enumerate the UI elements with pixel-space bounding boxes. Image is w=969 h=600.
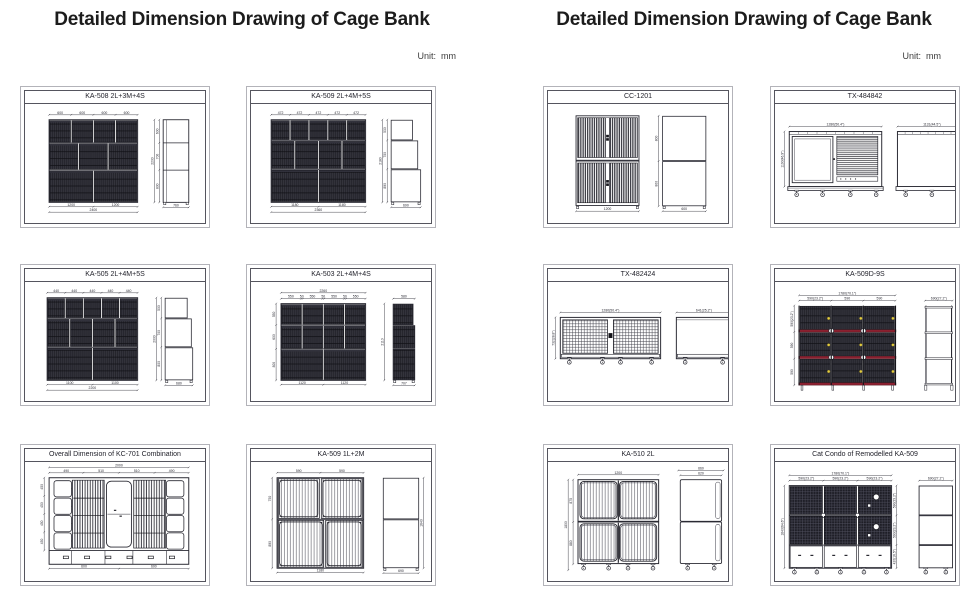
svg-text:600: 600 [151, 565, 157, 569]
panel-drawing: 1780(70.1")590(23.2")590(23.2")590(23.2"… [775, 462, 955, 581]
svg-text:600: 600 [124, 111, 130, 115]
panel-drawing: 4404404404404401100110022005007008002000… [25, 282, 205, 401]
svg-text:2400: 2400 [90, 208, 98, 212]
svg-text:440: 440 [108, 289, 114, 293]
panel-drawing: 1780(70.1")590(23.2")590590590(23.2")590… [775, 282, 955, 401]
svg-text:590: 590 [296, 469, 302, 473]
svg-text:1200: 1200 [67, 203, 75, 207]
svg-text:550: 550 [288, 295, 294, 299]
panel-frame: KA-508 2L+3M+4S 600600600600120012002400… [24, 90, 206, 224]
svg-text:660: 660 [698, 466, 704, 470]
svg-text:800: 800 [655, 181, 659, 187]
panel-drawing: 2000490510510490450450450450600600 [25, 462, 205, 581]
svg-text:875: 875 [569, 498, 573, 504]
svg-text:500: 500 [157, 305, 161, 311]
svg-text:2200: 2200 [89, 386, 97, 390]
svg-text:800: 800 [157, 361, 161, 367]
svg-text:1131(44.5"): 1131(44.5") [923, 123, 941, 127]
panel-drawing: 59059075089011801640690 [251, 462, 431, 581]
drawing-panel: KA-508 2L+3M+4S 600600600600120012002400… [20, 86, 210, 228]
svg-text:1780(70.1"): 1780(70.1") [838, 291, 856, 295]
panel-frame: KA-509D-9S 1780(70.1")590(23.2")59059059… [774, 268, 956, 402]
svg-text:1100: 1100 [66, 381, 73, 385]
svg-text:750: 750 [268, 496, 272, 502]
svg-text:580: 580 [401, 295, 407, 299]
panel-title: KA-508 2L+3M+4S [25, 91, 205, 104]
drawing-panel: KA-509 1L+2M 59059075089011801640690 [246, 444, 436, 586]
svg-text:1180: 1180 [291, 203, 298, 207]
svg-text:490: 490 [63, 469, 69, 473]
svg-text:641(25.2"): 641(25.2") [696, 309, 712, 313]
panel-title: KA-505 2L+4M+5S [25, 269, 205, 282]
panel-title: KA-509D-9S [775, 269, 955, 282]
svg-text:590(23.2"): 590(23.2") [832, 477, 848, 481]
panel-title: Cat Condo of Remodelled KA-509 [775, 449, 955, 462]
svg-text:472: 472 [353, 111, 359, 115]
panel-frame: KA-510 2L 12001800875880660620 [547, 448, 729, 582]
drawing-panel: KA-509 2L+4M+5S 472472472472472118011802… [246, 86, 436, 228]
svg-text:1640: 1640 [420, 519, 424, 527]
drawing-panel: KA-505 2L+4M+5S 440440440440440110011002… [20, 264, 210, 406]
panel-title: KA-509 1L+2M [251, 449, 431, 462]
panel-title: CC-1201 [548, 91, 728, 104]
svg-text:1120: 1120 [341, 381, 348, 385]
svg-text:1780(70.1"): 1780(70.1") [831, 471, 849, 475]
svg-text:750: 750 [383, 152, 387, 158]
svg-text:1190(46.9"): 1190(46.9") [780, 151, 784, 168]
svg-text:420(16.5"): 420(16.5") [892, 549, 896, 564]
svg-text:600: 600 [57, 111, 63, 115]
drawing-panel: TX-484842 1280(50.4")1190(46.9")1131(44.… [770, 86, 960, 228]
svg-text:472: 472 [297, 111, 303, 115]
svg-text:550: 550 [310, 295, 316, 299]
svg-text:2260: 2260 [319, 289, 327, 293]
svg-text:440: 440 [126, 289, 132, 293]
panel-title: Overall Dimension of KC-701 Combination [25, 449, 205, 462]
svg-text:590(23.2"): 590(23.2") [807, 297, 823, 301]
svg-text:450: 450 [40, 484, 44, 490]
svg-text:690(27.2"): 690(27.2") [931, 297, 947, 301]
svg-text:600: 600 [81, 565, 87, 569]
svg-text:510: 510 [134, 469, 140, 473]
svg-text:760: 760 [173, 203, 179, 207]
svg-text:550: 550 [272, 311, 276, 317]
panel-title: TX-484842 [775, 91, 955, 104]
panel-drawing: 2260550505505055050550112011205506008005… [251, 282, 431, 401]
catalog-page-left: Detailed Dimension Drawing of Cage Bank … [0, 0, 484, 600]
svg-text:2360: 2360 [315, 208, 323, 212]
drawing-panel: CC-1201 1200800800600 [543, 86, 733, 228]
svg-text:2000: 2000 [115, 463, 123, 467]
panel-frame: KA-505 2L+4M+5S 440440440440440110011002… [24, 268, 206, 402]
panel-title: KA-503 2L+4M+4S [251, 269, 431, 282]
svg-text:550: 550 [331, 295, 337, 299]
panel-frame: KA-509 2L+4M+5S 472472472472472118011802… [250, 90, 432, 224]
panels-grid: KA-508 2L+3M+4S 600600600600120012002400… [0, 0, 484, 600]
svg-text:530: 530 [383, 127, 387, 133]
panel-frame: TX-484842 1280(50.4")1190(46.9")1131(44.… [774, 90, 956, 224]
drawing-panel: KA-510 2L 12001800875880660620 [543, 444, 733, 586]
svg-text:620: 620 [698, 471, 704, 475]
svg-text:590(23.2"): 590(23.2") [798, 477, 814, 481]
panels-grid: CC-1201 1200800800600 TX-484842 1280(50.… [485, 0, 969, 600]
svg-text:590: 590 [877, 297, 883, 301]
svg-text:880: 880 [569, 540, 573, 546]
svg-text:450: 450 [40, 502, 44, 508]
svg-text:440: 440 [71, 289, 77, 293]
svg-text:590(23.2"): 590(23.2") [892, 493, 896, 508]
svg-text:490: 490 [169, 469, 175, 473]
svg-text:700: 700 [155, 154, 159, 160]
svg-text:700: 700 [157, 330, 161, 336]
svg-text:690: 690 [398, 569, 404, 573]
svg-text:1200: 1200 [112, 203, 120, 207]
svg-text:590(23.2"): 590(23.2") [892, 522, 896, 537]
svg-text:800: 800 [655, 136, 659, 142]
svg-text:1180: 1180 [317, 569, 324, 573]
svg-text:440: 440 [53, 289, 59, 293]
drawing-panel: Cat Condo of Remodelled KA-509 1780(70.1… [770, 444, 960, 586]
panel-frame: Cat Condo of Remodelled KA-509 1780(70.1… [774, 448, 956, 582]
svg-text:1280(50.4"): 1280(50.4") [827, 123, 845, 127]
panel-frame: TX-482424 1280(50.4")732(28.8")641(25.2"… [547, 268, 729, 402]
panel-title: KA-510 2L [548, 449, 728, 462]
svg-text:472: 472 [278, 111, 284, 115]
panel-drawing: 4724724724724721180118023605307508902180… [251, 104, 431, 223]
svg-text:472: 472 [316, 111, 322, 115]
svg-text:450: 450 [40, 520, 44, 526]
svg-text:600: 600 [272, 334, 276, 340]
svg-text:590(23.2"): 590(23.2") [867, 477, 883, 481]
svg-text:1180: 1180 [338, 203, 345, 207]
svg-text:600: 600 [155, 128, 159, 134]
svg-text:600: 600 [79, 111, 85, 115]
svg-text:1100: 1100 [111, 381, 118, 385]
panel-drawing: 6006006006001200120024006007008002200760 [25, 104, 205, 223]
svg-text:472: 472 [334, 111, 340, 115]
svg-text:590: 590 [790, 343, 794, 349]
panel-title: TX-482424 [548, 269, 728, 282]
svg-text:590: 590 [844, 297, 850, 301]
drawing-panel: KA-509D-9S 1780(70.1")590(23.2")59059059… [770, 264, 960, 406]
catalog-spread: Detailed Dimension Drawing of Cage Bank … [0, 0, 969, 600]
panel-frame: KA-503 2L+4M+4S 226055050550505505055011… [250, 268, 432, 402]
drawing-panel: TX-482424 1280(50.4")732(28.8")641(25.2"… [543, 264, 733, 406]
svg-text:890: 890 [268, 541, 272, 547]
svg-text:450: 450 [40, 538, 44, 544]
svg-text:2000: 2000 [152, 335, 156, 343]
svg-text:590(23.2"): 590(23.2") [790, 311, 794, 326]
svg-text:690: 690 [403, 203, 409, 207]
drawing-panel: KA-503 2L+4M+4S 226055050550505505055011… [246, 264, 436, 406]
svg-text:510: 510 [98, 469, 104, 473]
svg-text:2110: 2110 [380, 338, 384, 345]
svg-text:800: 800 [272, 362, 276, 368]
svg-text:1280(50.4"): 1280(50.4") [602, 309, 620, 313]
panel-frame: KA-509 1L+2M 59059075089011801640690 [250, 448, 432, 582]
svg-text:2180: 2180 [378, 157, 382, 165]
panel-drawing: 1200800800600 [548, 104, 728, 223]
svg-text:1200: 1200 [604, 207, 612, 211]
catalog-page-right: Detailed Dimension Drawing of Cage Bank … [485, 0, 969, 600]
svg-text:1120: 1120 [298, 381, 305, 385]
panel-drawing: 12001800875880660620 [548, 462, 728, 581]
svg-text:590: 590 [790, 369, 794, 375]
svg-text:800: 800 [155, 183, 159, 189]
panel-frame: Overall Dimension of KC-701 Combination … [24, 448, 206, 582]
svg-text:1200: 1200 [615, 471, 623, 475]
svg-text:550: 550 [353, 295, 359, 299]
svg-text:680: 680 [176, 381, 182, 385]
panel-drawing: 1280(50.4")732(28.8")641(25.2") [548, 282, 728, 401]
svg-text:732(28.8"): 732(28.8") [551, 330, 555, 345]
svg-text:890: 890 [383, 183, 387, 189]
svg-text:600: 600 [681, 207, 687, 211]
svg-text:1640(64.6"): 1640(64.6") [780, 518, 784, 535]
svg-text:590: 590 [339, 469, 345, 473]
svg-text:1800: 1800 [564, 521, 568, 529]
svg-text:2200: 2200 [150, 157, 154, 165]
panel-title: KA-509 2L+4M+5S [251, 91, 431, 104]
svg-text:440: 440 [90, 289, 96, 293]
drawing-panel: Overall Dimension of KC-701 Combination … [20, 444, 210, 586]
svg-text:690(27.2"): 690(27.2") [928, 477, 944, 481]
svg-text:707: 707 [401, 381, 407, 385]
panel-frame: CC-1201 1200800800600 [547, 90, 729, 224]
panel-drawing: 1280(50.4")1190(46.9")1131(44.5") [775, 104, 955, 223]
svg-text:600: 600 [102, 111, 108, 115]
